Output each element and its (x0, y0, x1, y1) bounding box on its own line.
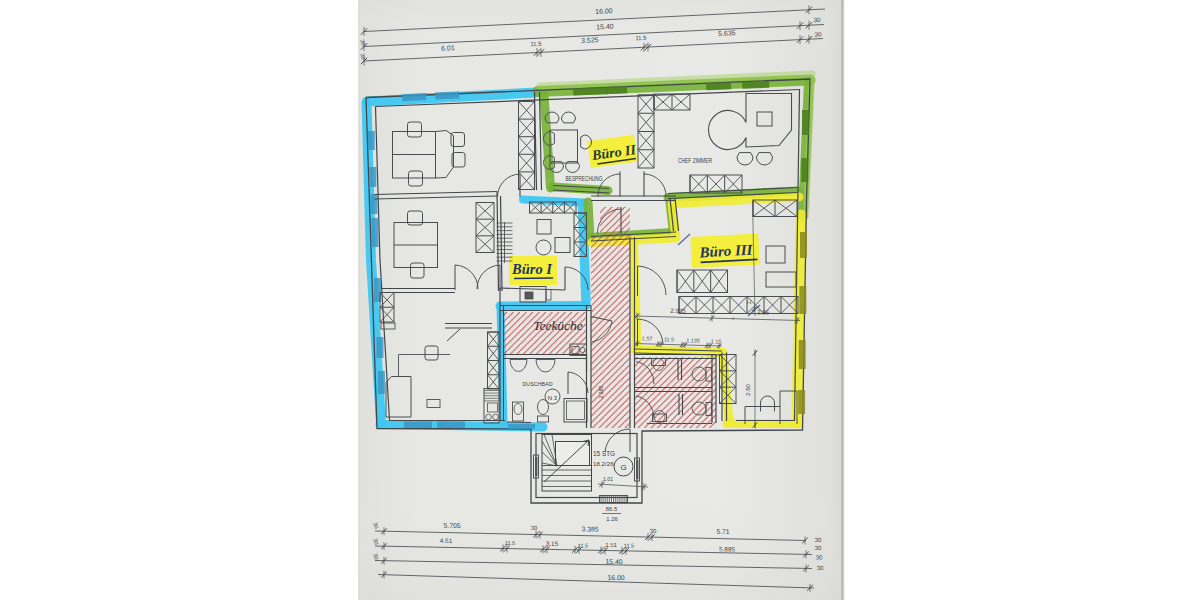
svg-text:Teeküche: Teeküche (533, 318, 583, 333)
svg-text:30: 30 (531, 525, 538, 531)
svg-text:3.525: 3.525 (581, 36, 599, 44)
svg-text:6.01: 6.01 (441, 44, 455, 52)
svg-text:86.5: 86.5 (606, 506, 617, 512)
svg-text:Büro I: Büro I (511, 261, 553, 277)
svg-text:16.00: 16.00 (595, 7, 613, 15)
svg-text:30: 30 (815, 537, 822, 543)
svg-text:1.135: 1.135 (686, 337, 700, 343)
svg-text:11.5: 11.5 (505, 540, 516, 546)
svg-text:DUSCHBAD: DUSCHBAD (523, 380, 553, 387)
svg-text:1.01: 1.01 (603, 476, 613, 482)
svg-text:5.705: 5.705 (443, 522, 460, 529)
svg-text:30: 30 (816, 554, 823, 560)
svg-text:N 3: N 3 (548, 395, 558, 401)
svg-text:2.96: 2.96 (757, 308, 770, 315)
svg-text:5.71: 5.71 (716, 528, 730, 535)
svg-text:G: G (620, 463, 626, 472)
svg-text:5.635: 5.635 (718, 29, 736, 37)
svg-text:3.385: 3.385 (581, 525, 598, 532)
svg-text:CHEF ZIMMER: CHEF ZIMMER (678, 157, 712, 164)
svg-text:BESPRECHUNG: BESPRECHUNG (566, 175, 603, 182)
svg-text:11.5: 11.5 (635, 35, 647, 42)
svg-text:30: 30 (650, 528, 657, 534)
svg-text:15 STG: 15 STG (593, 450, 615, 457)
svg-text:1.51: 1.51 (605, 542, 617, 548)
svg-text:11.5: 11.5 (530, 41, 542, 48)
svg-text:2.50: 2.50 (744, 383, 751, 396)
svg-text:30: 30 (815, 545, 822, 551)
svg-text:11.5: 11.5 (578, 542, 589, 548)
svg-text:30: 30 (813, 16, 821, 23)
svg-text:1.26: 1.26 (606, 516, 617, 522)
svg-text:16.00: 16.00 (607, 574, 624, 581)
svg-text:4.51: 4.51 (440, 537, 453, 544)
svg-text:18,2/26: 18,2/26 (593, 460, 614, 467)
svg-text:1.15: 1.15 (711, 338, 722, 344)
svg-text:11.5: 11.5 (624, 542, 635, 548)
svg-text:1.57: 1.57 (642, 335, 653, 341)
svg-text:2.385: 2.385 (598, 385, 604, 398)
svg-text:11.5: 11.5 (664, 336, 674, 342)
svg-text:15.40: 15.40 (605, 558, 622, 565)
svg-text:ι: ι (732, 315, 733, 321)
svg-text:5.885: 5.885 (719, 545, 736, 552)
svg-text:Büro III: Büro III (698, 242, 754, 261)
svg-text:30: 30 (817, 565, 824, 571)
svg-text:3.15: 3.15 (546, 540, 559, 547)
svg-text:2.935: 2.935 (670, 307, 686, 314)
svg-text:30: 30 (814, 30, 822, 37)
svg-text:2.: 2. (746, 300, 752, 304)
svg-text:15.40: 15.40 (596, 23, 614, 31)
